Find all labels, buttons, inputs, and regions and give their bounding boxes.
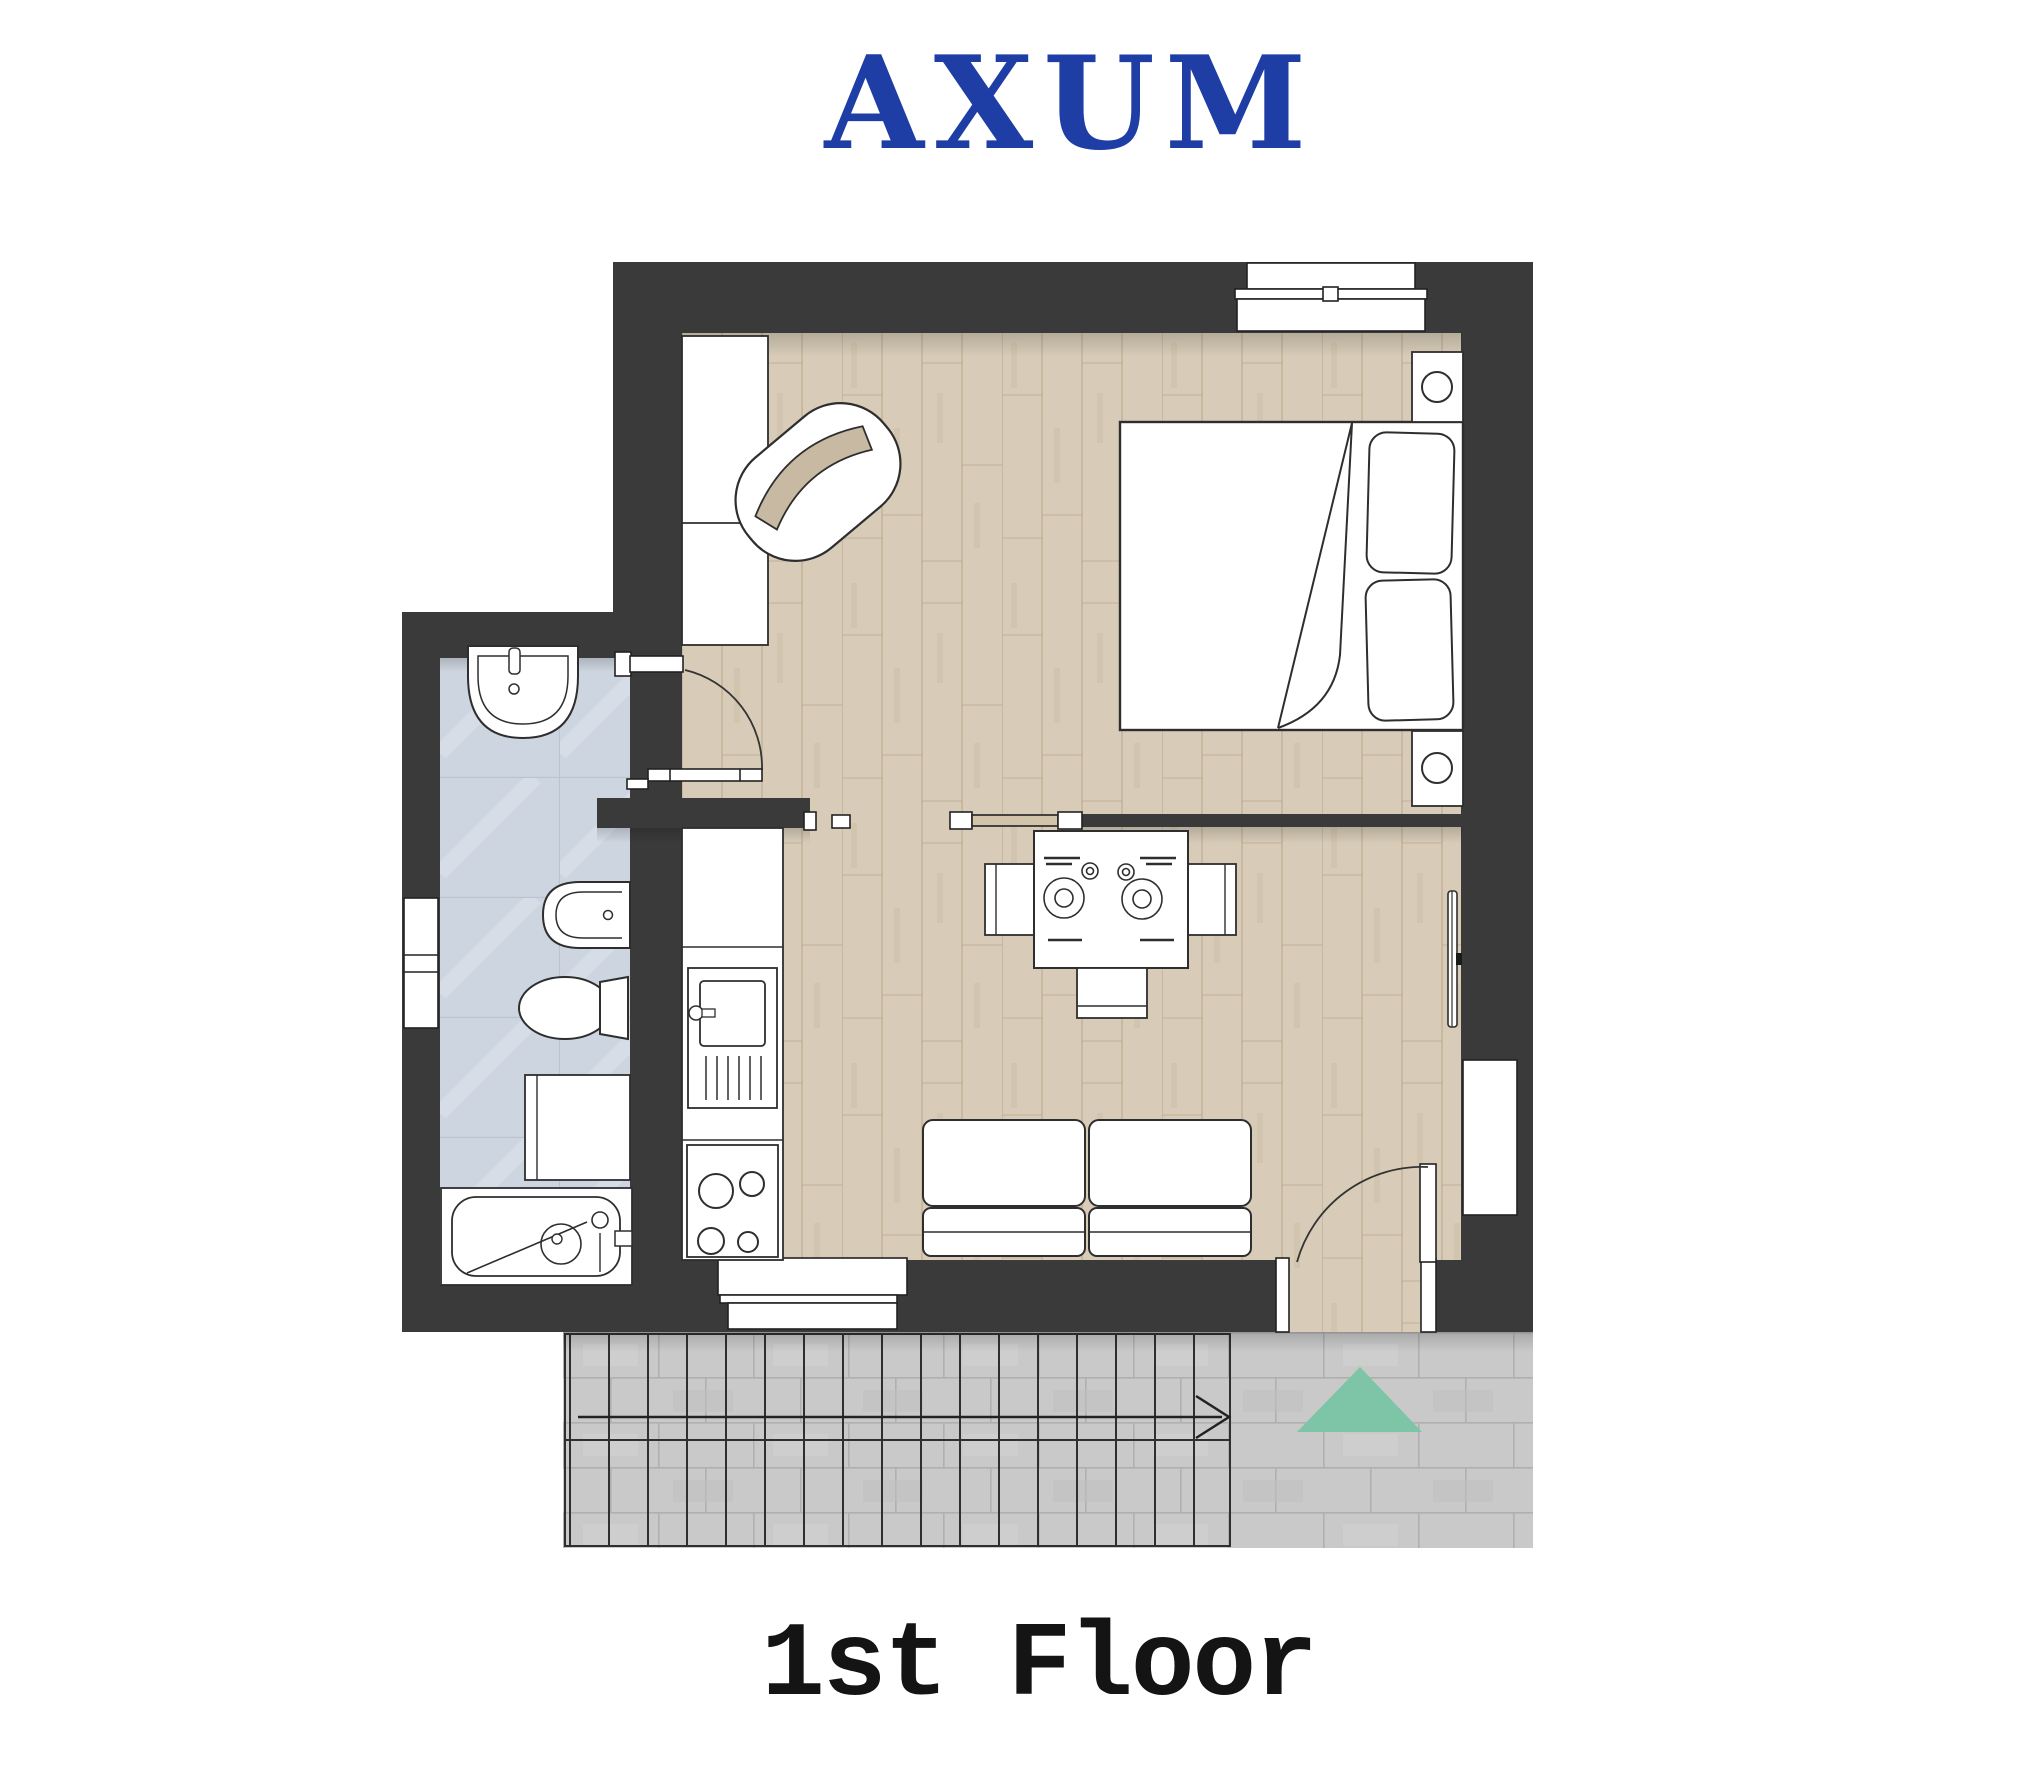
entrance-door-leaf [1420, 1164, 1436, 1262]
page: AXUM [0, 0, 2017, 1788]
dining-chair-right [1186, 864, 1236, 935]
kitchen-sink [688, 968, 777, 1108]
dining-table [1034, 831, 1188, 968]
bathtub [441, 1188, 632, 1285]
kitchen-window [718, 1258, 907, 1329]
patio-shadow [563, 1332, 1533, 1352]
wall-divider-left-arm [597, 798, 810, 828]
bedroom-window [1235, 263, 1427, 331]
nightstand-bottom [1412, 731, 1463, 806]
dining-chair-left [985, 864, 1035, 935]
floor-plan-svg [0, 0, 2017, 1788]
bathroom-sink [468, 646, 578, 738]
wall-left-bedroom [613, 262, 682, 612]
wall-cupboard [1463, 1060, 1517, 1215]
kitchen [682, 828, 783, 1260]
wall-bottom-right [1421, 1260, 1533, 1332]
bidet [543, 882, 630, 948]
washing-machine [525, 1075, 630, 1180]
entrance-threshold [1289, 1260, 1421, 1332]
nightstand-top [1412, 352, 1463, 422]
door-jamb-right [1421, 1258, 1436, 1332]
wall-bathroom-right [630, 658, 682, 1285]
wall-divider-right [1060, 814, 1462, 827]
stove [687, 1145, 778, 1257]
bed [1120, 422, 1463, 730]
toilet [519, 977, 628, 1039]
sliding-door-panel [972, 815, 1058, 826]
door-jamb-left [1276, 1258, 1289, 1332]
bathroom-window [404, 898, 438, 1028]
floor-label: 1st Floor [30, 1608, 2017, 1725]
dining-bench [1077, 968, 1147, 1018]
